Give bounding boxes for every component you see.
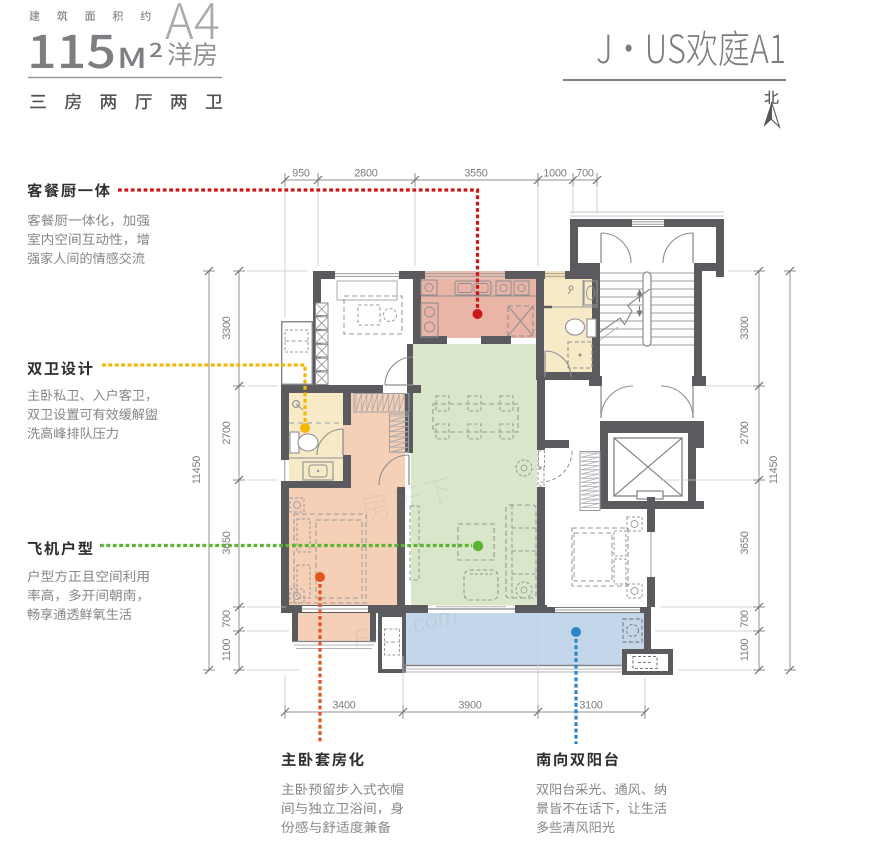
svg-text:11450: 11450 xyxy=(768,456,780,484)
svg-text:2700: 2700 xyxy=(739,421,751,444)
svg-text:1100: 1100 xyxy=(221,639,233,662)
svg-text:3650: 3650 xyxy=(221,531,233,554)
svg-text:11450: 11450 xyxy=(191,456,203,484)
svg-text:3550: 3550 xyxy=(464,168,487,180)
svg-text:700: 700 xyxy=(739,610,751,628)
svg-text:3400: 3400 xyxy=(332,700,355,712)
svg-text:2800: 2800 xyxy=(354,168,377,180)
svg-text:700: 700 xyxy=(221,610,233,628)
svg-text:3650: 3650 xyxy=(739,531,751,554)
svg-text:3100: 3100 xyxy=(579,700,602,712)
svg-text:950: 950 xyxy=(292,168,310,180)
svg-text:3300: 3300 xyxy=(739,316,751,339)
svg-text:1100: 1100 xyxy=(739,639,751,662)
svg-text:2700: 2700 xyxy=(221,421,233,444)
svg-text:700: 700 xyxy=(576,168,594,180)
svg-text:3900: 3900 xyxy=(458,700,481,712)
svg-text:1000: 1000 xyxy=(543,168,566,180)
svg-text:3300: 3300 xyxy=(221,316,233,339)
